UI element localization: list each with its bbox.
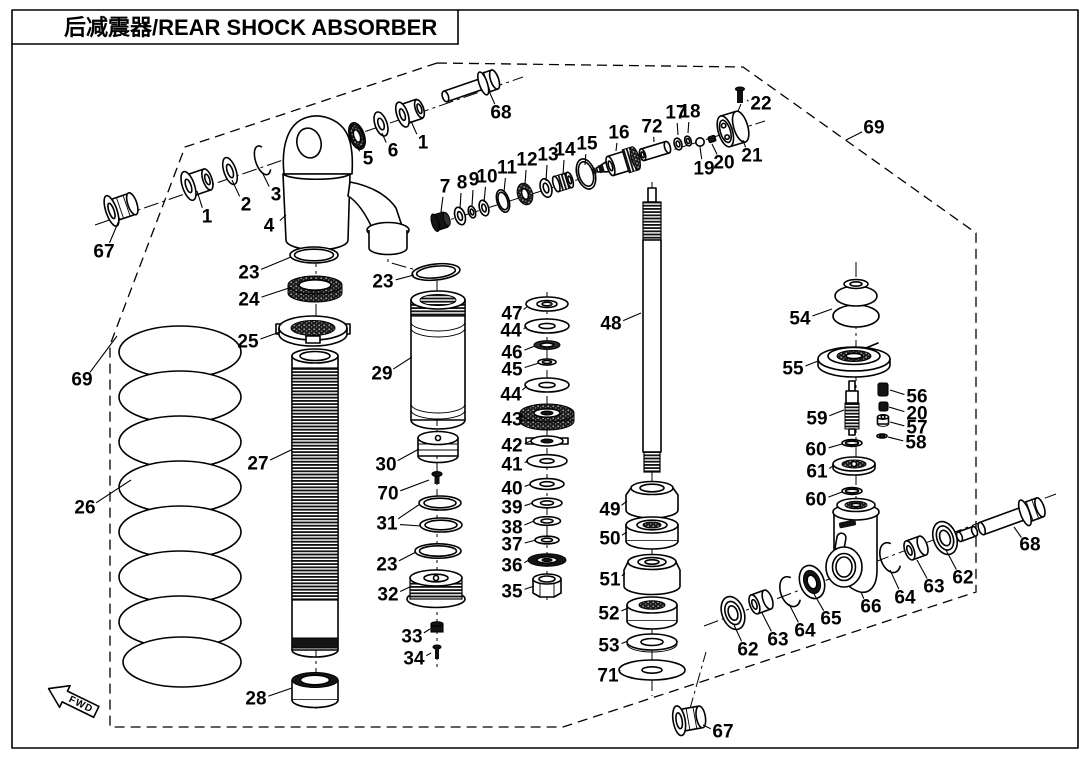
part-washer-38 <box>534 517 561 526</box>
callout-1: 1 <box>418 133 429 154</box>
leader-line-13 <box>546 165 547 181</box>
part-bearing-12 <box>515 181 536 206</box>
callout-15: 15 <box>576 134 598 155</box>
leader-line-47 <box>524 306 528 310</box>
callout-62: 62 <box>737 640 758 661</box>
part-ball-19 <box>696 138 704 146</box>
callout-69: 69 <box>863 118 884 139</box>
callout-52: 52 <box>598 604 619 625</box>
callout-20: 20 <box>713 153 734 174</box>
part-oring-23-a <box>290 247 338 263</box>
part-oring-23-b <box>411 262 460 283</box>
part-bushing-63-left <box>747 589 775 616</box>
part-washer-47 <box>526 297 568 311</box>
part-washer-39 <box>532 498 562 508</box>
callout-60: 60 <box>805 490 826 511</box>
callout-55: 55 <box>782 359 804 380</box>
leader-line-69 <box>846 132 862 140</box>
leader-line-46 <box>524 346 535 350</box>
callout-29: 29 <box>371 364 392 385</box>
callout-49: 49 <box>599 500 620 521</box>
part-ring-17 <box>673 137 684 151</box>
callout-67: 67 <box>712 722 733 743</box>
leader-line-29 <box>393 357 412 369</box>
callout-3: 3 <box>271 185 282 206</box>
leader-line-20 <box>889 407 904 412</box>
part-washer-9 <box>467 205 477 219</box>
part-guide-51 <box>624 555 680 595</box>
callout-30: 30 <box>375 455 396 476</box>
callout-11: 11 <box>497 158 518 179</box>
callout-23: 23 <box>238 263 259 284</box>
callout-66: 66 <box>860 597 881 618</box>
leader-line-7 <box>441 197 443 212</box>
callout-45: 45 <box>501 360 523 381</box>
leader-line-19 <box>700 147 702 159</box>
leader-line-22 <box>747 100 749 101</box>
part-washer-6 <box>371 110 390 138</box>
callout-35: 35 <box>501 582 523 603</box>
part-screw-70 <box>432 472 442 484</box>
part-plug-56 <box>878 383 888 396</box>
part-seal-52 <box>627 597 677 629</box>
leader-line-18 <box>688 122 689 133</box>
callout-53: 53 <box>598 636 619 657</box>
part-washer-44-a <box>525 319 569 333</box>
leader-line-14 <box>563 160 564 175</box>
callout-51: 51 <box>599 570 621 591</box>
callout-14: 14 <box>554 140 576 161</box>
callout-65: 65 <box>820 609 842 630</box>
callout-2: 2 <box>241 195 252 216</box>
part-nut-33 <box>431 622 443 632</box>
callout-60: 60 <box>805 440 826 461</box>
part-washer-41 <box>527 455 567 468</box>
leader-line-58 <box>888 437 903 441</box>
part-tube-68-tip <box>955 526 978 543</box>
callout-70: 70 <box>377 484 398 505</box>
callout-48: 48 <box>600 314 621 335</box>
part-washer-46 <box>534 341 560 350</box>
callout-5: 5 <box>363 149 374 170</box>
leader-line-8 <box>460 193 461 209</box>
callout-59: 59 <box>806 409 827 430</box>
fwd-arrow: FWD <box>43 678 101 723</box>
callout-44: 44 <box>500 321 522 342</box>
part-washer-71 <box>619 660 685 680</box>
callout-24: 24 <box>238 290 260 311</box>
part-bump-stop-54 <box>833 280 879 328</box>
callout-63: 63 <box>923 577 944 598</box>
callout-33: 33 <box>401 627 422 648</box>
part-ring-18 <box>683 135 692 146</box>
part-seal-62-left <box>717 593 749 632</box>
callout-67: 67 <box>93 242 114 263</box>
part-ring-11 <box>494 188 512 214</box>
diagram-title: 后减震器/REAR SHOCK ABSORBER <box>64 15 437 40</box>
leader-line-55 <box>805 361 818 366</box>
part-nut-7 <box>429 210 452 233</box>
part-nut-35 <box>533 574 561 597</box>
part-bushing-1-left <box>178 164 217 202</box>
callout-32: 32 <box>377 585 398 606</box>
part-bushing-1-right <box>393 95 427 129</box>
part-washer-2 <box>220 156 240 186</box>
part-bearing-43 <box>520 404 574 430</box>
part-locknut-24 <box>288 276 342 302</box>
leader-line-23 <box>261 257 291 269</box>
part-bushing-63-right <box>902 535 930 562</box>
callout-31: 31 <box>376 514 398 535</box>
part-tube-72 <box>638 141 672 162</box>
part-adjuster-59 <box>845 381 859 435</box>
part-snap-ring-64-right <box>876 541 901 576</box>
part-cap-32 <box>407 570 465 608</box>
part-plug-20 <box>708 135 716 143</box>
callout-41: 41 <box>501 455 523 476</box>
part-cap-57 <box>878 415 889 427</box>
callout-62: 62 <box>952 568 973 589</box>
leader-line-60 <box>829 444 842 448</box>
part-flange-nut-67-bottom <box>671 701 708 736</box>
leader-line-10 <box>484 187 486 202</box>
callout-71: 71 <box>597 666 619 687</box>
callout-12: 12 <box>516 150 537 171</box>
callout-36: 36 <box>501 556 522 577</box>
leader-line-16 <box>616 143 617 151</box>
callout-28: 28 <box>245 689 266 710</box>
leader-line-37 <box>525 540 536 543</box>
callout-72: 72 <box>641 117 662 138</box>
callout-16: 16 <box>608 123 629 144</box>
part-screw-34 <box>433 645 441 659</box>
callout-7: 7 <box>440 177 451 198</box>
callout-10: 10 <box>476 167 497 188</box>
part-washer-37 <box>535 536 559 544</box>
callout-58: 58 <box>905 433 926 454</box>
leader-line-1 <box>411 121 417 134</box>
callout-4: 4 <box>264 216 275 237</box>
part-reservoir-29 <box>411 291 465 429</box>
part-plug-20-b <box>879 402 888 411</box>
part-lower-mount-66 <box>826 499 879 593</box>
leader-line-28 <box>268 688 292 696</box>
callout-64: 64 <box>894 588 916 609</box>
callout-8: 8 <box>457 173 468 194</box>
callout-42: 42 <box>501 436 522 457</box>
part-washer-40 <box>530 479 564 490</box>
callout-27: 27 <box>247 454 268 475</box>
part-snap-ring-3 <box>251 145 271 177</box>
leader-line-11 <box>504 178 505 192</box>
leader-line-34 <box>426 653 431 656</box>
part-flange-nut-67-top <box>101 187 142 228</box>
callout-19: 19 <box>693 159 714 180</box>
part-ring-15 <box>573 157 599 192</box>
leader-line-45 <box>525 363 539 368</box>
leader-line-9 <box>472 190 473 206</box>
callout-34: 34 <box>403 649 425 670</box>
leader-line-24 <box>262 288 290 297</box>
callout-6: 6 <box>388 141 399 162</box>
leader-line-59 <box>829 410 844 416</box>
callout-44: 44 <box>500 385 522 406</box>
part-piston-30 <box>418 432 458 463</box>
part-washer-45 <box>538 359 556 365</box>
parts-diagram: 后减震器/REAR SHOCK ABSORBER <box>0 0 1090 760</box>
callout-50: 50 <box>599 529 620 550</box>
part-cap-21 <box>714 109 752 148</box>
part-oring-60-b <box>842 488 862 495</box>
leader-line-33 <box>424 629 430 633</box>
callout-64: 64 <box>794 621 816 642</box>
leader-line-12 <box>525 170 526 185</box>
callout-21: 21 <box>741 146 763 167</box>
part-screw-22 <box>736 87 745 103</box>
part-bushing-28 <box>292 673 338 708</box>
part-guide-49 <box>626 482 678 519</box>
callout-23: 23 <box>376 555 397 576</box>
callout-18: 18 <box>679 102 700 123</box>
part-washer-58 <box>877 434 887 438</box>
leader-line-17 <box>677 123 678 135</box>
part-adjust-nut-25 <box>276 316 350 346</box>
callout-68: 68 <box>1019 535 1040 556</box>
callout-25: 25 <box>237 332 259 353</box>
callout-22: 22 <box>750 94 771 115</box>
leader-line-23 <box>396 275 414 280</box>
part-shock-body-27 <box>292 349 338 657</box>
leader-line-30 <box>398 449 419 461</box>
callout-26: 26 <box>74 498 95 519</box>
part-washer-44-b <box>525 378 569 392</box>
part-bearing-65 <box>795 562 829 602</box>
callout-63: 63 <box>767 630 788 651</box>
part-rings-31 <box>419 496 462 532</box>
callout-37: 37 <box>501 535 522 556</box>
leader-line-60 <box>828 492 842 497</box>
callout-43: 43 <box>501 410 522 431</box>
part-oring-60-a <box>842 440 862 447</box>
part-spring-26 <box>119 326 241 687</box>
callout-23: 23 <box>372 272 393 293</box>
leader-line-23 <box>399 552 416 561</box>
part-seal-50 <box>626 517 678 549</box>
part-clevis-4 <box>283 116 409 255</box>
part-star-washer-42 <box>526 436 568 446</box>
leader-line-56 <box>890 390 904 395</box>
leader-line-70 <box>400 480 429 491</box>
part-oring-23-c <box>415 544 461 558</box>
leader-line-25 <box>260 332 280 339</box>
leader-line-57 <box>890 422 904 426</box>
leader-line-31 <box>398 504 420 519</box>
part-valve-61 <box>833 457 875 475</box>
part-washer-53 <box>627 634 677 652</box>
leader-line-31 <box>400 525 421 526</box>
callout-39: 39 <box>501 498 522 519</box>
callout-61: 61 <box>806 462 828 483</box>
leader-line-38 <box>524 521 534 525</box>
callout-40: 40 <box>501 479 522 500</box>
leader-line-69 <box>90 336 117 372</box>
part-washer-36 <box>528 554 566 567</box>
callout-1: 1 <box>202 207 213 228</box>
part-piston-rod-48 <box>643 188 661 472</box>
leader-line-54 <box>812 309 832 316</box>
callout-68: 68 <box>490 103 511 124</box>
leader-line-27 <box>270 450 291 460</box>
callout-54: 54 <box>789 309 811 330</box>
part-spring-seat-55 <box>818 343 890 377</box>
leader-line-48 <box>623 313 641 321</box>
callout-69: 69 <box>71 370 92 391</box>
